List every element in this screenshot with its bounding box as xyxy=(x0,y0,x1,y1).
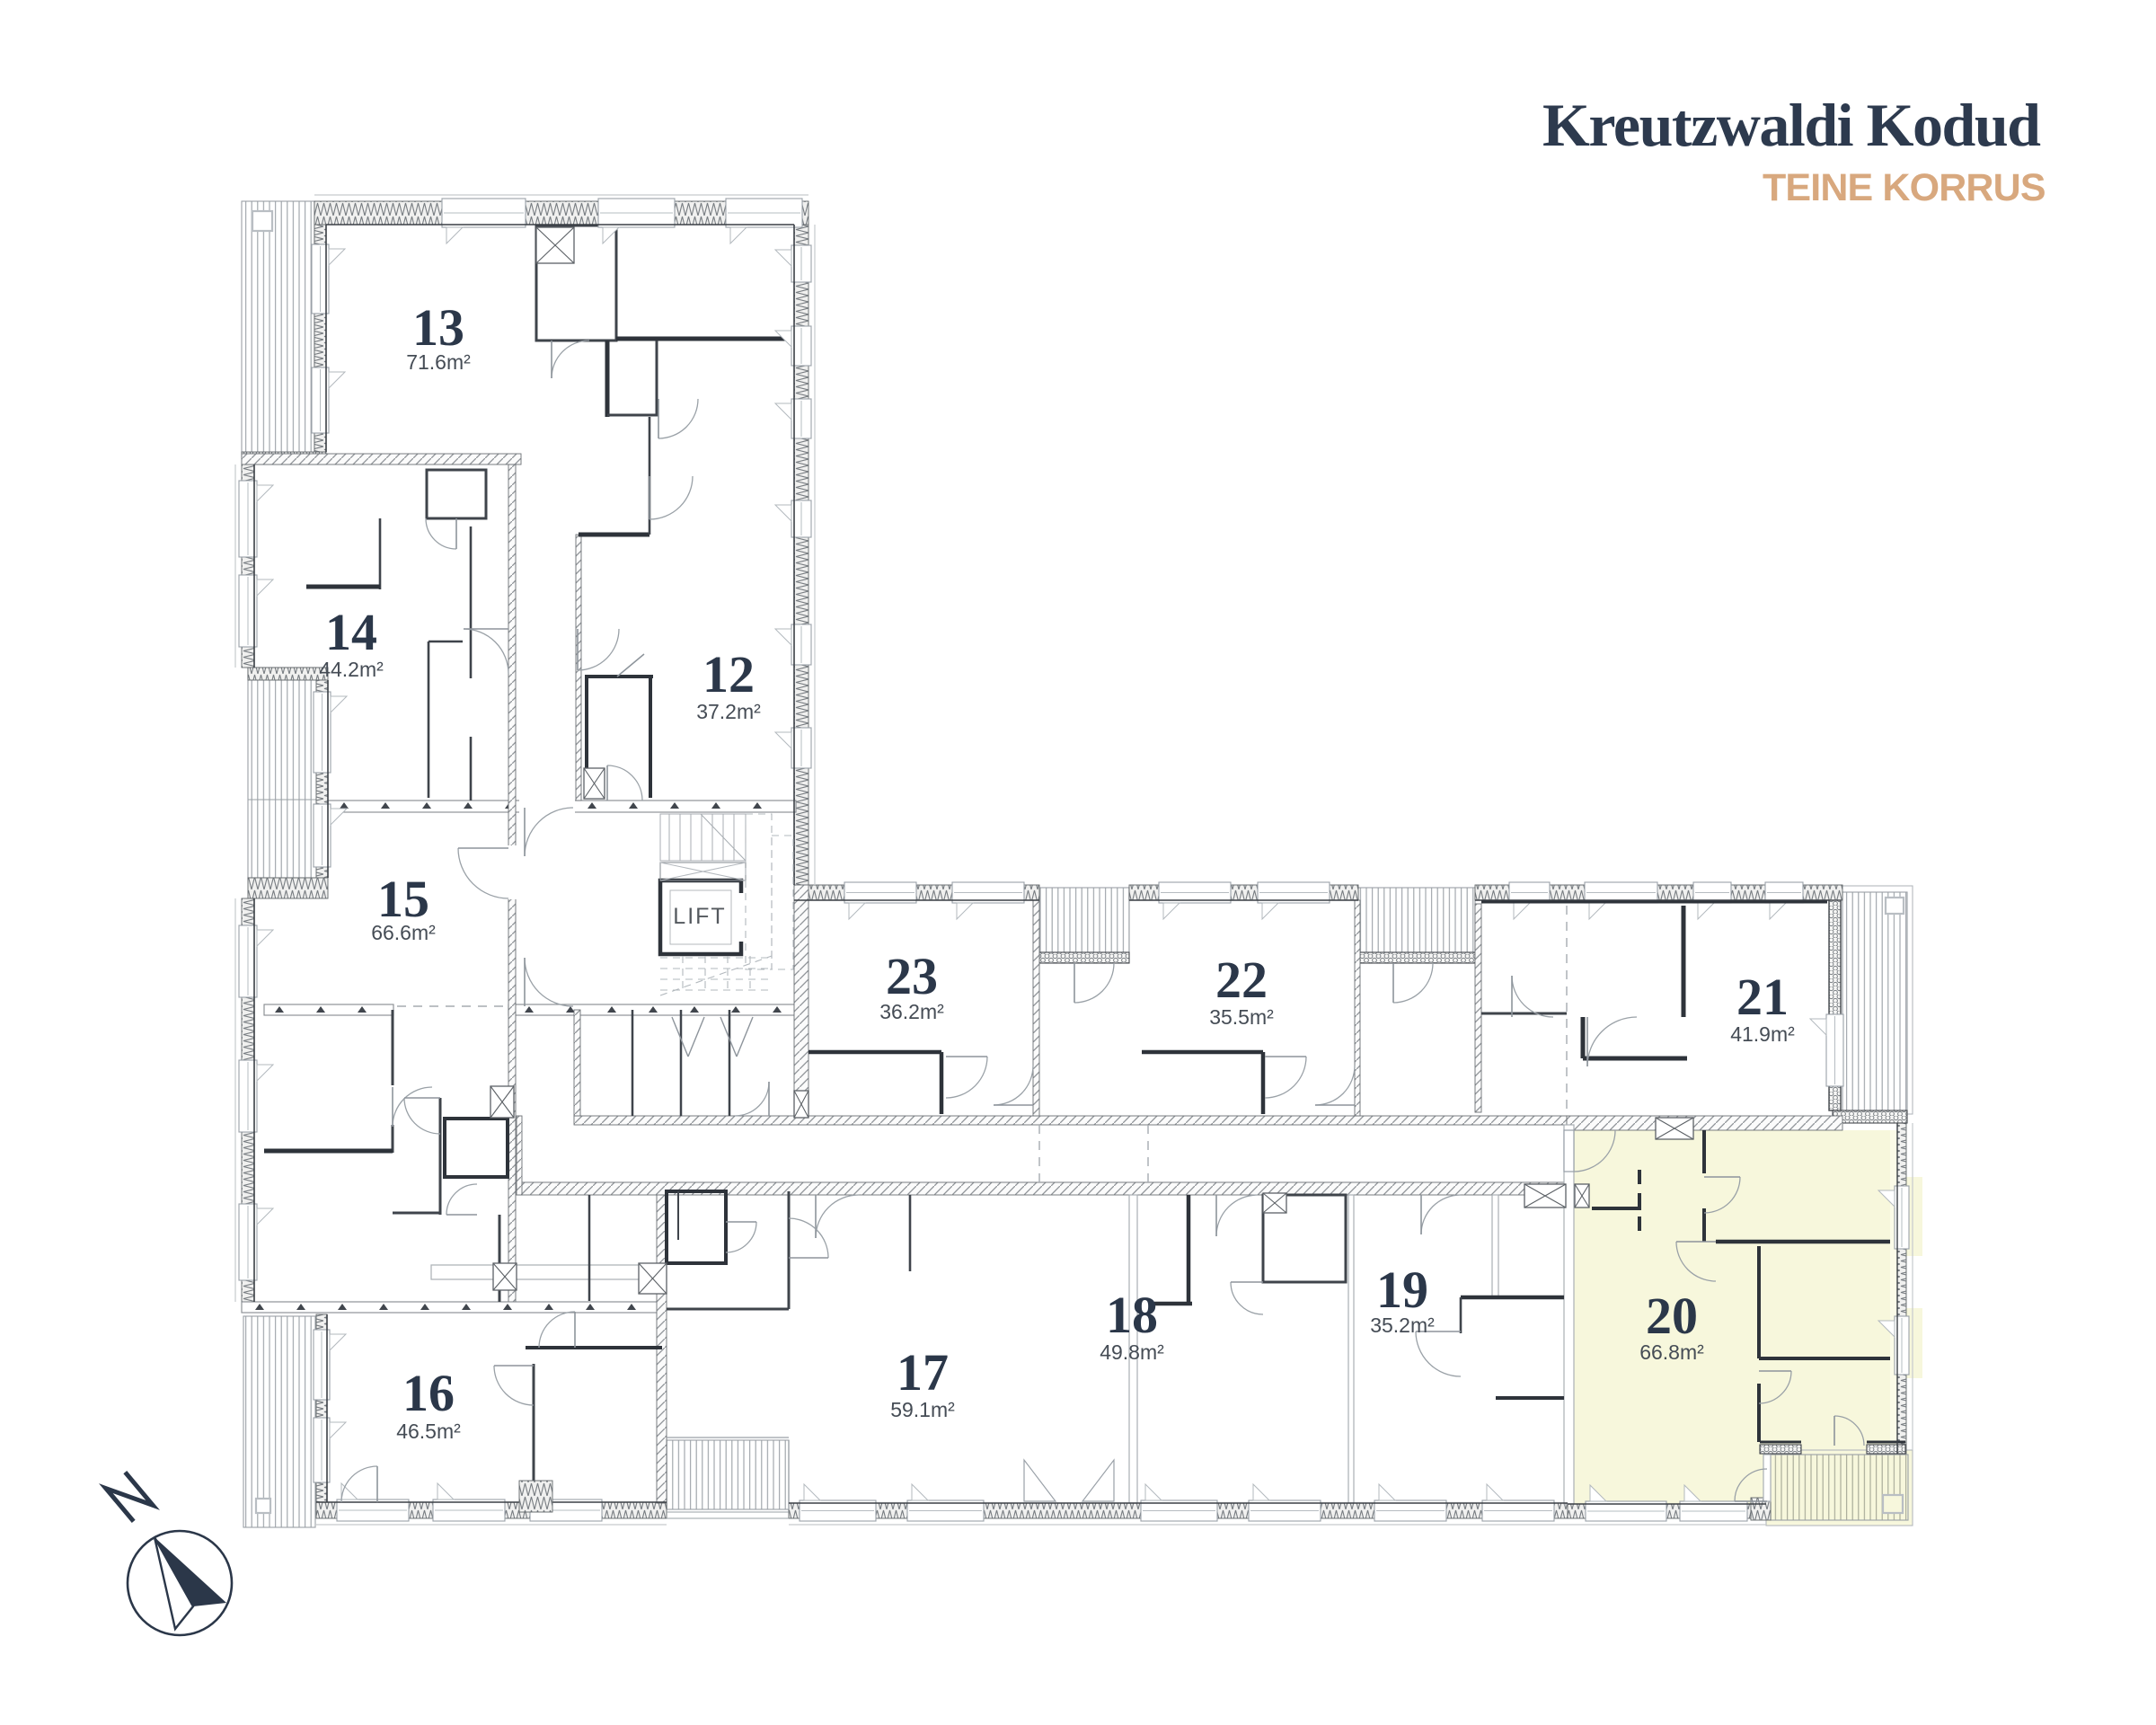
svg-text:44.2m²: 44.2m² xyxy=(319,658,384,681)
svg-text:49.8m²: 49.8m² xyxy=(1100,1340,1164,1364)
svg-text:71.6m²: 71.6m² xyxy=(406,350,471,374)
svg-text:35.2m²: 35.2m² xyxy=(1370,1314,1435,1337)
svg-text:16: 16 xyxy=(402,1364,455,1422)
svg-text:15: 15 xyxy=(377,870,429,928)
svg-text:36.2m²: 36.2m² xyxy=(879,1000,944,1023)
svg-text:LIFT: LIFT xyxy=(673,904,726,929)
svg-text:22: 22 xyxy=(1215,951,1268,1009)
svg-text:23: 23 xyxy=(886,947,938,1005)
svg-text:59.1m²: 59.1m² xyxy=(890,1398,955,1421)
svg-text:66.8m²: 66.8m² xyxy=(1639,1340,1704,1364)
svg-text:14: 14 xyxy=(325,603,377,661)
svg-text:46.5m²: 46.5m² xyxy=(396,1420,461,1443)
svg-text:20: 20 xyxy=(1646,1287,1698,1345)
svg-text:41.9m²: 41.9m² xyxy=(1730,1022,1795,1046)
svg-text:18: 18 xyxy=(1106,1286,1158,1344)
svg-text:37.2m²: 37.2m² xyxy=(696,700,761,723)
svg-text:13: 13 xyxy=(412,298,464,357)
svg-text:21: 21 xyxy=(1736,968,1789,1026)
svg-text:66.6m²: 66.6m² xyxy=(371,921,436,944)
svg-text:Kreutzwaldi Kodud: Kreutzwaldi Kodud xyxy=(1542,91,2041,159)
svg-text:17: 17 xyxy=(897,1343,949,1402)
svg-text:TEINE KORRUS: TEINE KORRUS xyxy=(1763,166,2047,209)
svg-text:12: 12 xyxy=(702,645,755,703)
svg-text:35.5m²: 35.5m² xyxy=(1209,1005,1274,1029)
svg-text:19: 19 xyxy=(1376,1261,1428,1319)
